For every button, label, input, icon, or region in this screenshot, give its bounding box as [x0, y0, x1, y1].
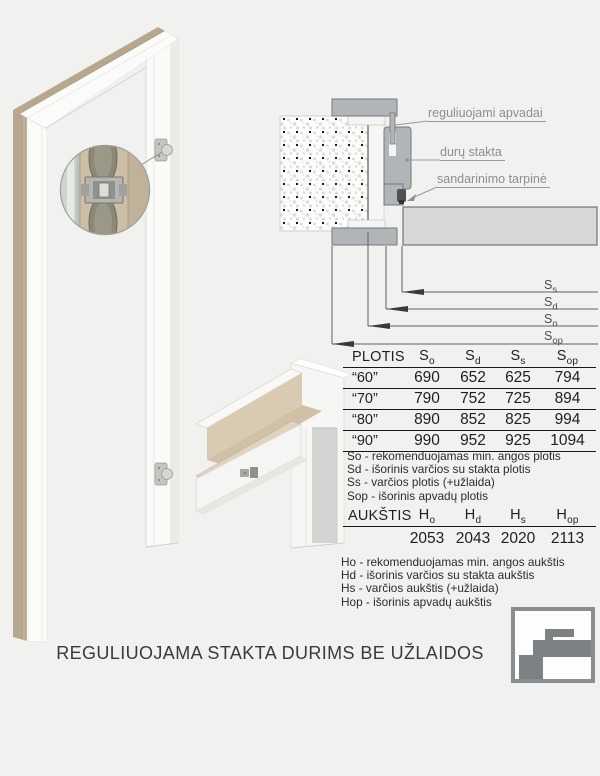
wall-hatch: [280, 116, 368, 231]
page-title: REGULIUOJAMA STAKTA DURIMS BE UŽLAIDOS: [20, 643, 520, 664]
col-so: So: [405, 348, 449, 367]
label-reguliuojami-apvadai: reguliuojami apvadai: [428, 106, 546, 122]
aukstis-header-row: AUKŠTIS Ho Hd Hs Hop: [343, 506, 596, 527]
col-sd: Sd: [449, 348, 497, 367]
dim-label-ss: Ss: [544, 279, 557, 297]
plotis-table: PLOTIS So Sd Ss Sop “60” 690 652 625 794…: [343, 347, 596, 452]
plotis-title: PLOTIS: [343, 349, 405, 365]
legend-line: Sop - išorinis apvadų plotis: [347, 490, 561, 503]
col-ss: Ss: [497, 348, 539, 367]
frame-profile-drawing: [196, 359, 351, 548]
casing-bottom: [332, 228, 397, 245]
casing-top: [332, 99, 397, 116]
legend-line: Hop - išorinis apvadų aukštis: [341, 596, 565, 609]
col-hs: Hs: [497, 507, 539, 526]
aukstis-values-row: 2053 2043 2020 2113: [343, 527, 596, 551]
spec-sheet-page: reguliuojami apvadai durų stakta sandari…: [0, 0, 600, 776]
dim-label-sop: Sop: [544, 330, 563, 348]
col-sop: Sop: [539, 348, 596, 367]
table-row: “70” 790 752 725 894: [343, 389, 596, 410]
label-sandarinimo-tarpine: sandarinimo tarpinė: [437, 172, 550, 188]
legend-line: Hs - varčios aukštis (+užlaida): [341, 582, 565, 595]
dimension-arrows: [332, 289, 424, 347]
table-row: “80” 890 852 825 994: [343, 410, 596, 431]
brand-logo-icon: [513, 609, 593, 681]
col-hop: Hop: [539, 507, 596, 526]
col-ho: Ho: [405, 507, 449, 526]
door-leaf: [403, 207, 597, 245]
label-duru-stakta: durų stakta: [440, 145, 505, 161]
aukstis-table: AUKŠTIS Ho Hd Hs Hop 2053 2043 2020 2113: [343, 506, 596, 551]
hinge-detail-circle: [58, 131, 152, 250]
door-frame-drawing: [13, 27, 178, 642]
plotis-legend: So - rekomenduojamas min. angos plotis S…: [347, 450, 561, 503]
table-row: “60” 690 652 625 794: [343, 368, 596, 389]
dim-label-sd: Sd: [544, 296, 558, 314]
aukstis-title: AUKŠTIS: [343, 508, 405, 524]
dimension-lines: [332, 232, 598, 344]
stakta-profile: [384, 127, 411, 189]
col-hd: Hd: [449, 507, 497, 526]
legend-line: Ss - varčios plotis (+užlaida): [347, 476, 561, 489]
aukstis-legend: Ho - rekomenduojamas min. angos aukštis …: [341, 556, 565, 609]
plotis-header-row: PLOTIS So Sd Ss Sop: [343, 347, 596, 368]
dim-label-so: So: [544, 313, 558, 331]
